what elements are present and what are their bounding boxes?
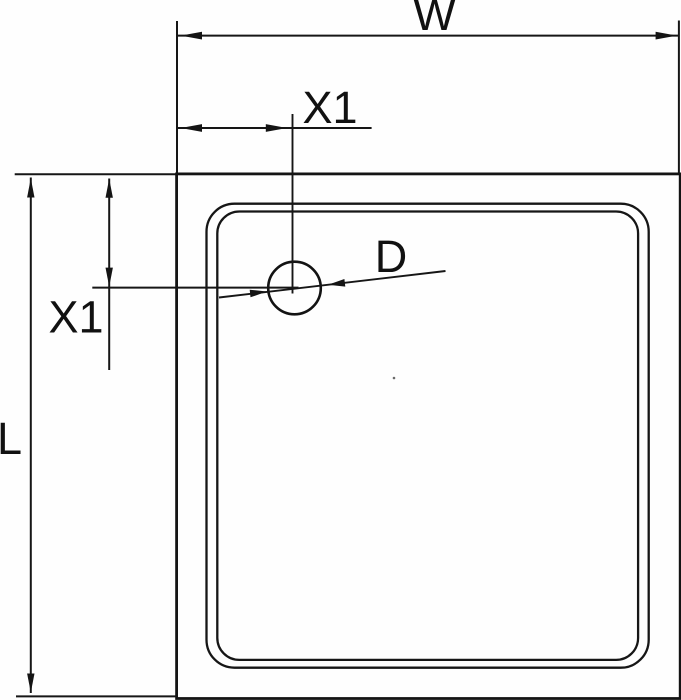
svg-text:L: L	[0, 413, 22, 464]
svg-text:X1: X1	[302, 82, 357, 133]
svg-text:X1: X1	[48, 292, 103, 343]
svg-text:W: W	[413, 0, 456, 40]
svg-text:D: D	[375, 231, 408, 282]
